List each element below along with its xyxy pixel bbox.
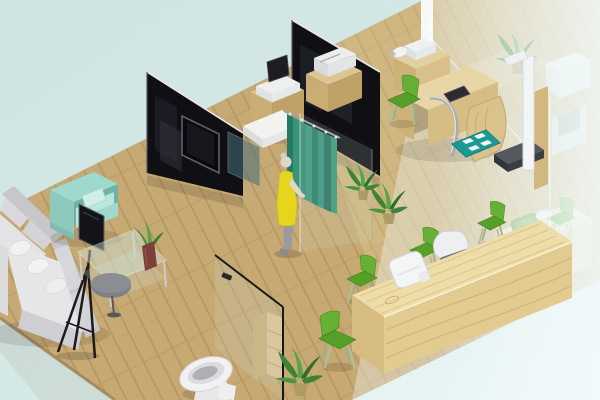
clinic-interior-render xyxy=(0,0,600,400)
hair-bun xyxy=(281,153,287,159)
scene-canvas xyxy=(0,0,600,400)
